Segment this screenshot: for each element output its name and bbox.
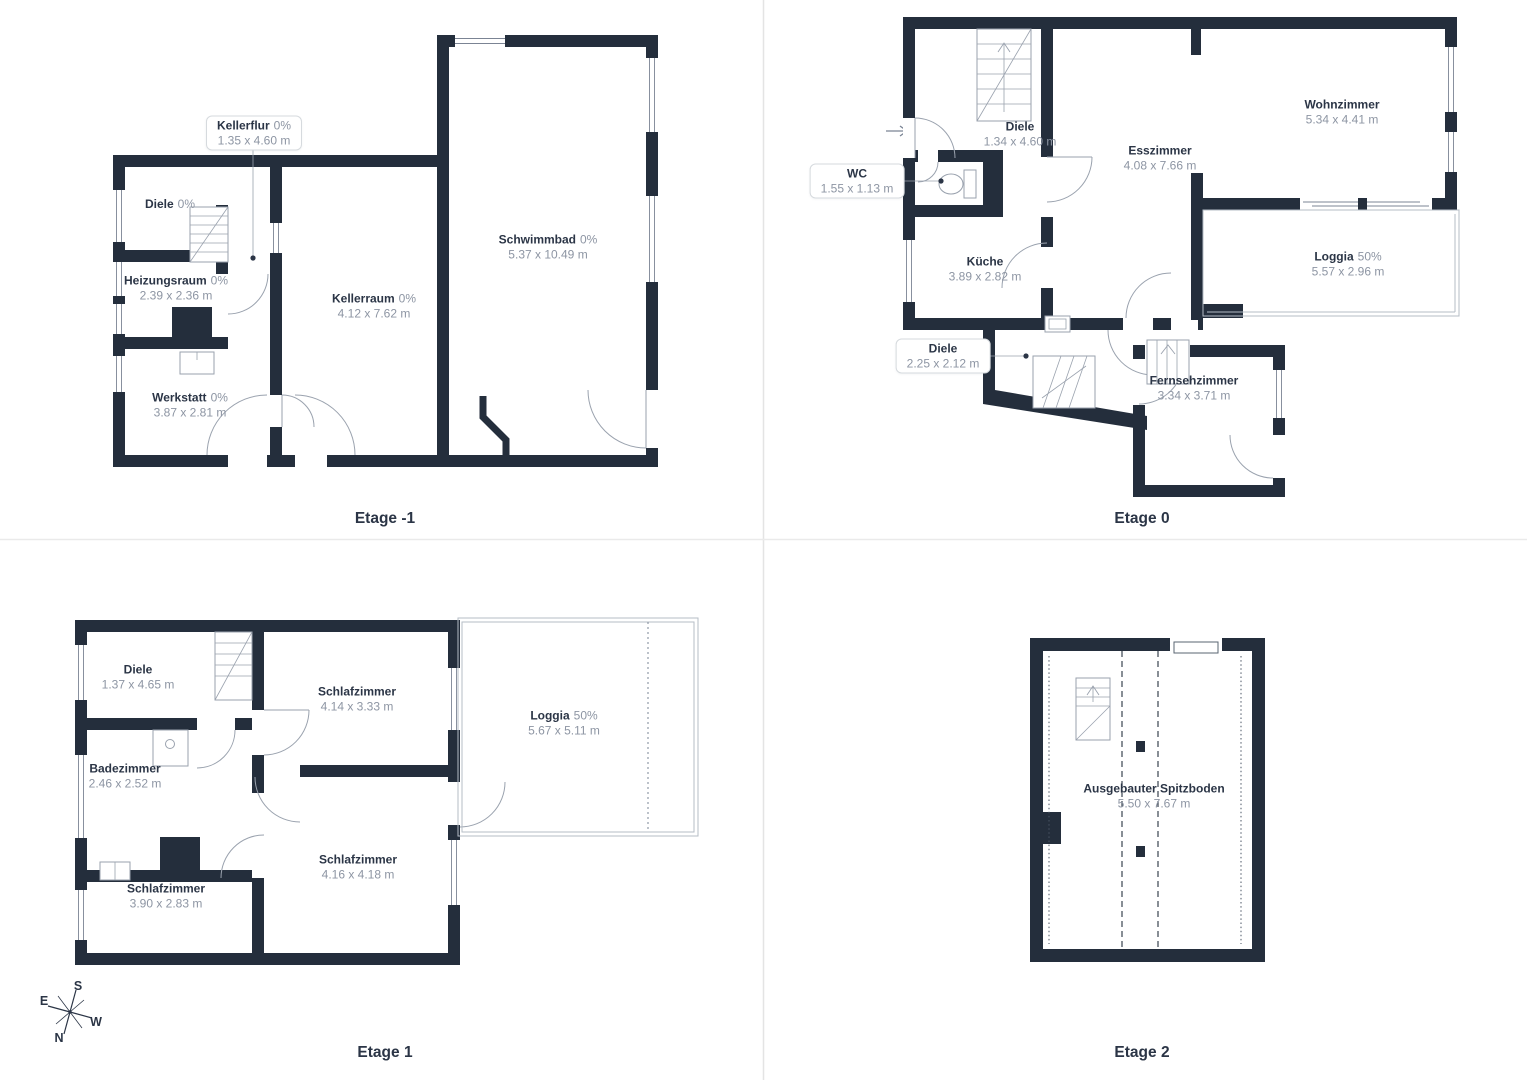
room-label-schlafzimmer-2: Schlafzimmer 4.16 x 4.18 m: [319, 853, 397, 882]
toilet-icon: [939, 170, 976, 198]
room-label-diele-eg: Diele 1.34 x 4.60 m: [984, 120, 1057, 149]
room-label-schwimmbad: Schwimmbad0% 5.37 x 10.49 m: [499, 233, 598, 262]
room-label-badezimmer: Badezimmer 2.46 x 2.52 m: [89, 762, 162, 791]
room-label-fernsehzimmer: Fernsehzimmer 3.34 x 3.71 m: [1150, 374, 1239, 403]
stairs-icon: [977, 29, 1031, 121]
room-label-heizungsraum: Heizungsraum0% 2.39 x 2.36 m: [124, 274, 228, 303]
floor-title-etage-minus-1: Etage -1: [355, 510, 415, 528]
callout-wc: WC 1.55 x 1.13 m: [810, 164, 905, 199]
room-label-schlafzimmer-1: Schlafzimmer 4.14 x 3.33 m: [318, 685, 396, 714]
callout-diele-lower: Diele 2.25 x 2.12 m: [896, 339, 991, 374]
room-label-spitzboden: Ausgebauter Spitzboden 5.50 x 7.67 m: [1083, 782, 1224, 811]
callout-kellerflur: Kellerflur0% 1.35 x 4.60 m: [206, 116, 302, 151]
room-label-werkstatt: Werkstatt0% 3.87 x 2.81 m: [152, 391, 228, 420]
room-label-schlafzimmer-3: Schlafzimmer 3.90 x 2.83 m: [127, 882, 205, 911]
sink-icon: [100, 862, 130, 880]
room-label-esszimmer: Esszimmer 4.08 x 7.66 m: [1124, 144, 1197, 173]
room-label-wohnzimmer: Wohnzimmer 5.34 x 4.41 m: [1304, 98, 1379, 127]
compass-icon: [48, 990, 92, 1034]
floor-title-etage-1: Etage 1: [357, 1044, 412, 1062]
room-label-loggia-eg: Loggia50% 5.57 x 2.96 m: [1312, 250, 1385, 279]
sink-icon: [1045, 316, 1070, 332]
stairs-icon: [1033, 356, 1095, 408]
compass-east-label: E: [40, 994, 48, 1008]
floorplan-sheet: Kellerflur0% 1.35 x 4.60 m Diele0% Heizu…: [0, 0, 1527, 1080]
room-label-kueche: Küche 3.89 x 2.82 m: [949, 255, 1022, 284]
room-label-loggia-og: Loggia50% 5.67 x 5.11 m: [528, 709, 600, 738]
stairs-icon: [215, 632, 252, 700]
stairs-icon: [1076, 678, 1110, 740]
doors-etage-0: [903, 118, 1273, 478]
stairs-icon: [190, 207, 228, 262]
floor-title-etage-0: Etage 0: [1114, 510, 1169, 528]
floor-title-etage-2: Etage 2: [1114, 1044, 1169, 1062]
room-label-diele-basement: Diele0%: [145, 197, 195, 212]
room-label-kellerraum: Kellerraum0% 4.12 x 7.62 m: [332, 292, 416, 321]
compass-north-label: N: [54, 1031, 63, 1045]
compass-south-label: S: [74, 979, 82, 993]
floorplan-drawing: [0, 0, 1527, 1080]
room-label-diele-og: Diele 1.37 x 4.65 m: [102, 663, 175, 692]
compass-west-label: W: [90, 1015, 102, 1029]
